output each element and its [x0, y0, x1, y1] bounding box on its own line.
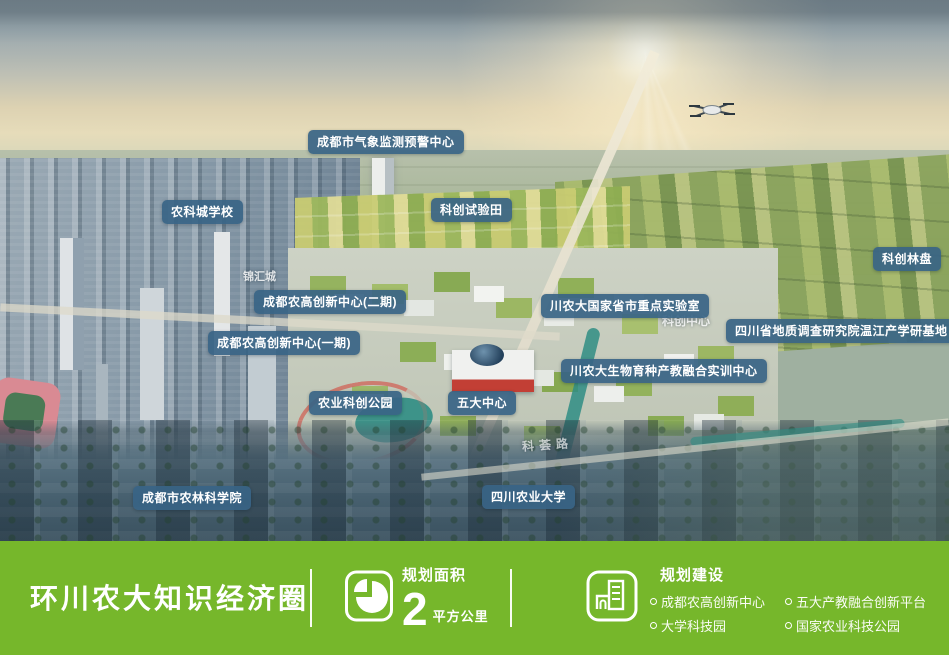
construction-item-label: 五大产教融合创新平台: [796, 592, 926, 611]
planned-area-block: 规划面积 2 平方公里: [402, 564, 489, 632]
bullet-dot-icon: [650, 622, 657, 629]
map-label-agri-sci-park: 农业科创公园: [309, 391, 402, 415]
map-label-agri-hitech-phase2: 成都农高创新中心(二期): [254, 290, 406, 314]
map-label-sichuan-agri-university: 四川农业大学: [482, 485, 575, 509]
construction-item-label: 国家农业科技公园: [796, 616, 900, 635]
planned-area-label: 规划面积: [402, 564, 489, 585]
bullet-dot-icon: [785, 622, 792, 629]
planned-construction-label: 规划建设: [660, 564, 926, 585]
construction-item: 五大产教融合创新平台: [785, 592, 926, 611]
page-title: 环川农大知识经济圈: [30, 577, 309, 617]
map-label-nongke-school: 农科城学校: [162, 200, 243, 224]
map-label-agri-hitech-phase1: 成都农高创新中心(一期): [208, 331, 360, 355]
bullet-dot-icon: [785, 598, 792, 605]
planned-area-unit: 平方公里: [433, 606, 489, 625]
construction-item: 成都农高创新中心: [650, 592, 785, 611]
map-label-linpan: 科创林盘: [873, 247, 941, 271]
planning-infographic: 锦汇城 科创中心 科荟路 成都市气象监测预警中心 农科城学校 科创试验田 科创林…: [0, 0, 949, 655]
construction-item: 大学科技园: [650, 616, 785, 635]
foreground-green-tint: [560, 430, 949, 541]
bullet-dot-icon: [650, 598, 657, 605]
construction-item-label: 成都农高创新中心: [661, 592, 765, 611]
planned-construction-block: 规划建设 成都农高创新中心 五大产教融合创新平台 大学科技园 国家农业科技公园: [650, 564, 926, 635]
footer-divider-2: [510, 569, 512, 627]
drone-icon: [688, 98, 736, 126]
building-icon: [585, 568, 639, 629]
planned-area-value: 2: [402, 586, 428, 632]
dome-roof: [470, 344, 504, 366]
tower-silhouettes: [60, 238, 84, 370]
pie-chart-icon: [344, 568, 394, 629]
construction-item: 国家农业科技公园: [785, 616, 926, 635]
map-label-forestry-academy: 成都市农林科学院: [133, 486, 251, 510]
info-footer: 环川农大知识经济圈 规划面积 2 平方公里: [0, 541, 949, 655]
map-label-weather-center: 成都市气象监测预警中心: [308, 130, 464, 154]
map-label-breeding-center: 川农大生物育种产教融合实训中心: [561, 359, 767, 383]
map-label-five-centers: 五大中心: [448, 391, 516, 415]
footer-divider-1: [310, 569, 312, 627]
ghost-label-jinhuicheng: 锦汇城: [243, 268, 276, 284]
aerial-render: 锦汇城 科创中心 科荟路 成都市气象监测预警中心 农科城学校 科创试验田 科创林…: [0, 0, 949, 541]
map-label-geology-base: 四川省地质调查研究院温江产学研基地: [726, 319, 949, 343]
construction-item-label: 大学科技园: [661, 616, 726, 635]
ghost-label-kehui-road: 科荟路: [521, 434, 573, 455]
map-label-key-lab: 川农大国家省市重点实验室: [541, 294, 709, 318]
map-label-trial-fields: 科创试验田: [431, 198, 512, 222]
planned-construction-list: 成都农高创新中心 五大产教融合创新平台 大学科技园 国家农业科技公园: [650, 592, 926, 635]
